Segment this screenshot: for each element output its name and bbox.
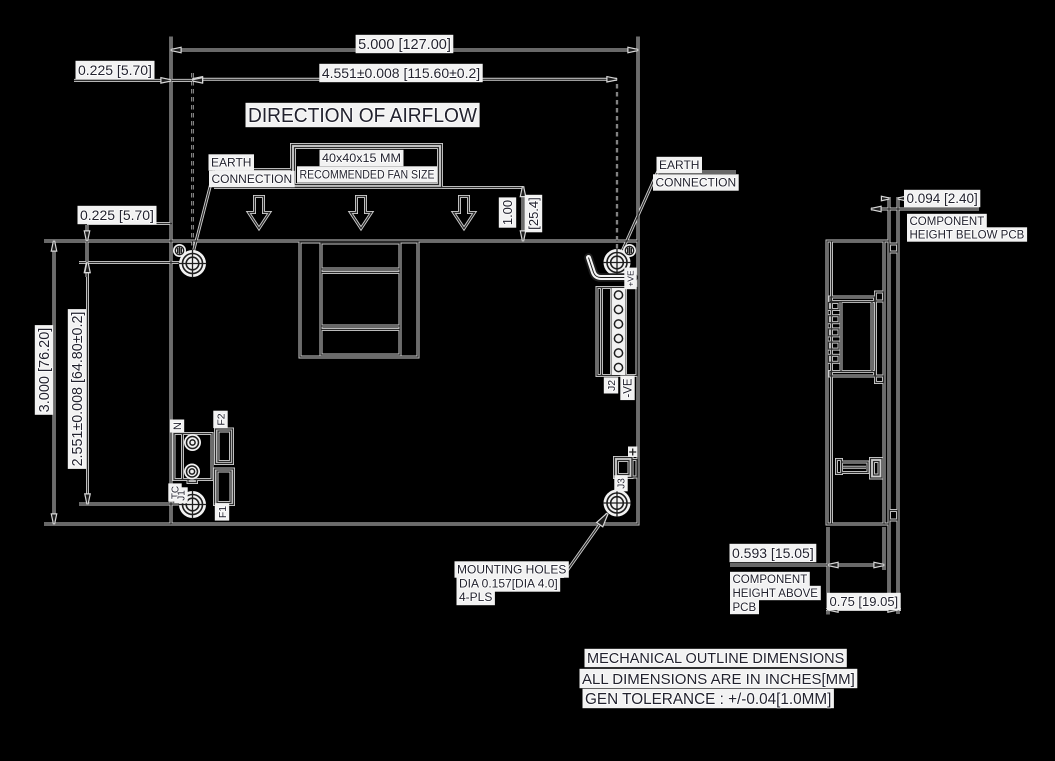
svg-text:CONNECTION: CONNECTION <box>656 176 737 190</box>
svg-text:CONNECTION: CONNECTION <box>212 172 293 186</box>
svg-text:HEIGHT ABOVE: HEIGHT ABOVE <box>733 588 819 600</box>
svg-text:5.000 [127.00]: 5.000 [127.00] <box>358 37 451 53</box>
svg-text:RECOMMENDED FAN SIZE: RECOMMENDED FAN SIZE <box>300 168 435 182</box>
svg-text:40x40x15 MM: 40x40x15 MM <box>322 151 401 165</box>
svg-text:MECHANICAL OUTLINE DIMENSIONS: MECHANICAL OUTLINE DIMENSIONS <box>587 651 844 667</box>
svg-text:EARTH: EARTH <box>211 156 251 170</box>
svg-text:-VE: -VE <box>623 378 635 398</box>
svg-text:J1: J1 <box>177 490 188 501</box>
svg-text:[25.4]: [25.4] <box>526 197 541 230</box>
svg-text:4-PLS: 4-PLS <box>459 590 492 604</box>
svg-text:EARTH: EARTH <box>659 158 699 172</box>
svg-text:0.593 [15.05]: 0.593 [15.05] <box>732 545 814 561</box>
svg-text:0.094 [2.40]: 0.094 [2.40] <box>907 191 978 206</box>
svg-text:0.225 [5.70]: 0.225 [5.70] <box>80 207 154 223</box>
svg-text:DIRECTION OF AIRFLOW: DIRECTION OF AIRFLOW <box>248 105 477 127</box>
svg-text:0.225 [5.70]: 0.225 [5.70] <box>78 62 152 78</box>
svg-text:PCB: PCB <box>733 602 757 614</box>
svg-text:ALL DIMENSIONS ARE IN INCHES[M: ALL DIMENSIONS ARE IN INCHES[MM] <box>582 671 855 688</box>
svg-text:COMPONENT: COMPONENT <box>733 574 808 586</box>
svg-text:F1: F1 <box>217 506 229 518</box>
svg-text:N: N <box>172 422 184 430</box>
svg-text:+VE: +VE <box>626 270 636 287</box>
svg-text:3.000 [76.20]: 3.000 [76.20] <box>37 328 53 413</box>
svg-text:DIA 0.157[DIA 4.0]: DIA 0.157[DIA 4.0] <box>459 577 558 591</box>
svg-text:HEIGHT BELOW PCB: HEIGHT BELOW PCB <box>910 230 1025 242</box>
svg-text:COMPONENT: COMPONENT <box>910 216 985 228</box>
svg-text:1.00: 1.00 <box>500 200 515 225</box>
svg-text:0.75 [19.05]: 0.75 [19.05] <box>830 594 899 609</box>
svg-text:F2: F2 <box>216 413 228 425</box>
svg-text:4.551±0.008 [115.60±0.2]: 4.551±0.008 [115.60±0.2] <box>322 65 480 81</box>
svg-text:J3: J3 <box>617 478 628 489</box>
svg-text:J2: J2 <box>606 380 618 391</box>
svg-text:MOUNTING HOLES: MOUNTING HOLES <box>457 563 566 577</box>
svg-text:2.551±0.008 [64.80±0.2]: 2.551±0.008 [64.80±0.2] <box>70 312 86 467</box>
svg-text:GEN TOLERANCE : +/-0.04[1.0MM]: GEN TOLERANCE : +/-0.04[1.0MM] <box>585 691 831 708</box>
